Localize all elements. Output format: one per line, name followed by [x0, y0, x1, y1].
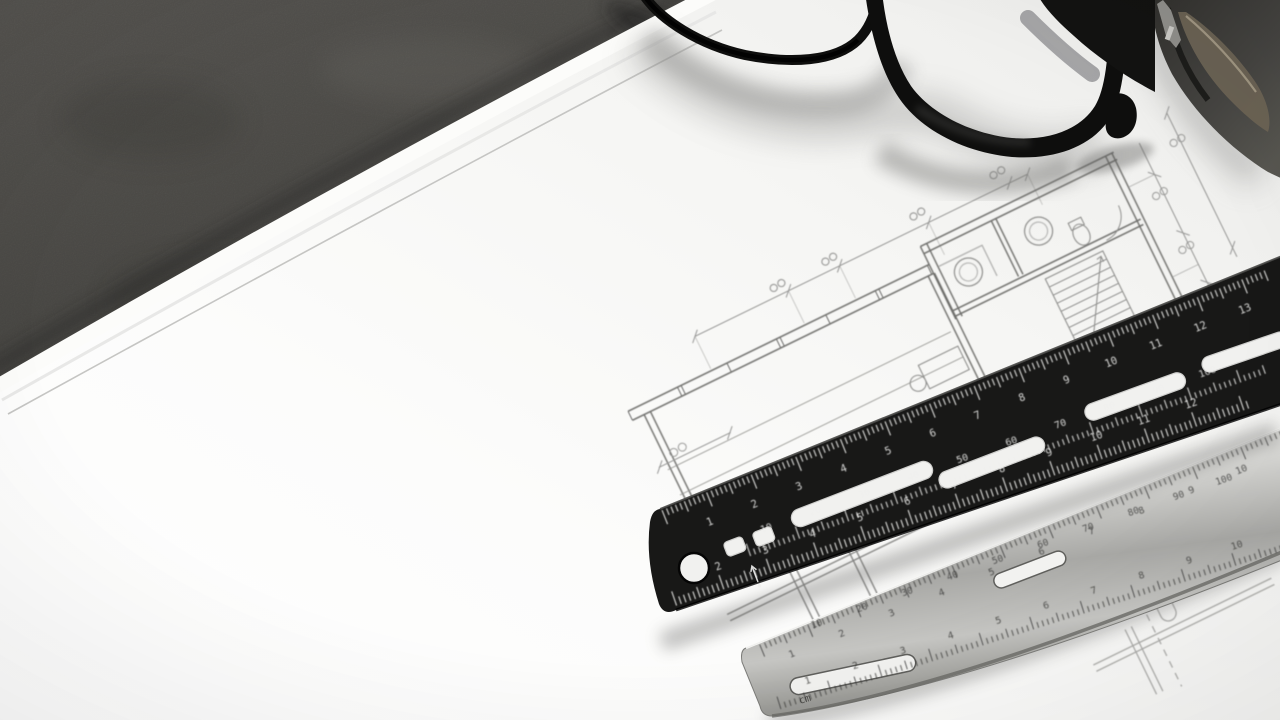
vignette — [0, 0, 1280, 720]
photo-architect-desk: 12345678910 102030405060708090100 123456… — [0, 0, 1280, 720]
